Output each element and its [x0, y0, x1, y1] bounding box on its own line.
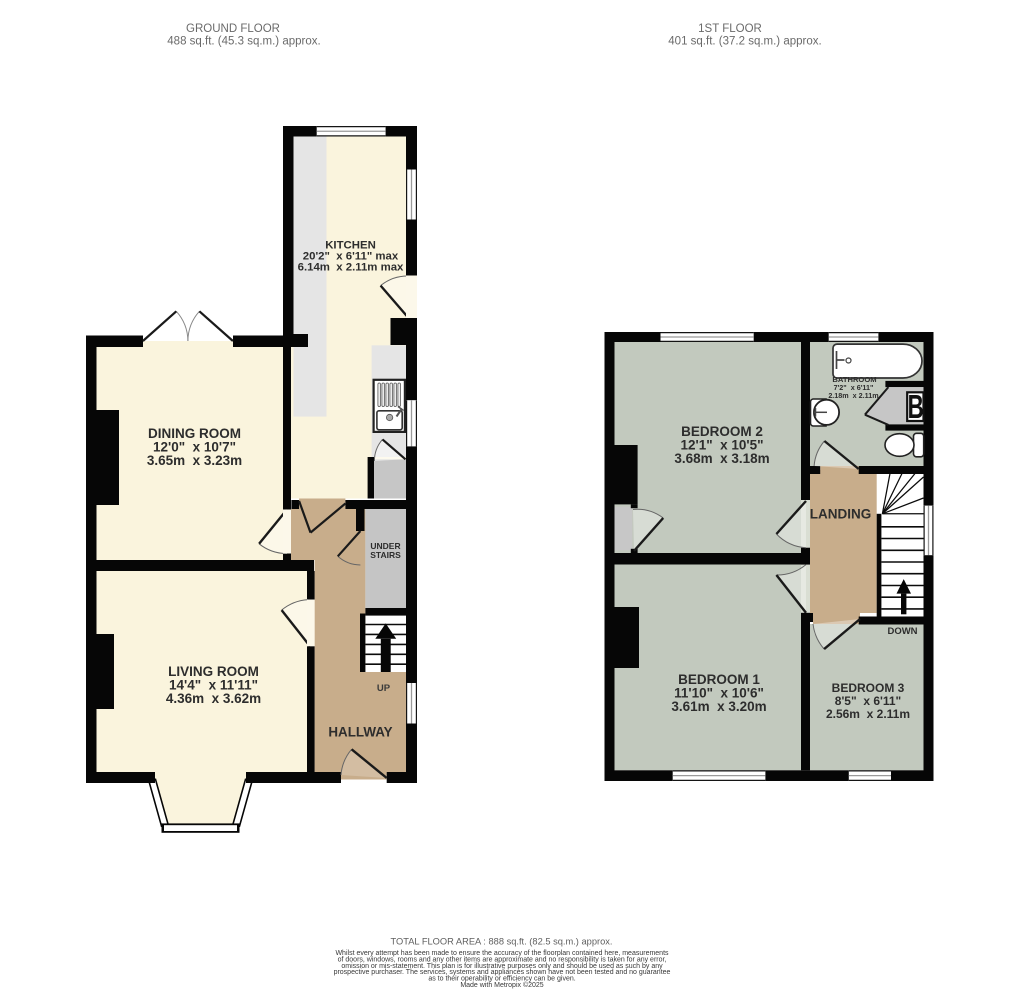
svg-text:TOTAL FLOOR AREA : 888 sq.ft.: TOTAL FLOOR AREA : 888 sq.ft. (82.5 sq.m…: [390, 937, 612, 947]
svg-text:LANDING: LANDING: [810, 507, 872, 522]
svg-text:488 sq.ft. (45.3 sq.m.) approx: 488 sq.ft. (45.3 sq.m.) approx.: [167, 36, 320, 48]
svg-text:B: B: [908, 388, 924, 425]
svg-text:3.65m x 3.23m: 3.65m x 3.23m: [147, 453, 242, 468]
svg-text:1ST FLOOR: 1ST FLOOR: [698, 23, 762, 35]
svg-text:HALLWAY: HALLWAY: [328, 725, 392, 740]
svg-text:GROUND FLOOR: GROUND FLOOR: [186, 23, 280, 35]
svg-text:3.68m x 3.18m: 3.68m x 3.18m: [674, 451, 769, 466]
svg-text:6.14m x 2.11m max: 6.14m x 2.11m max: [298, 262, 404, 274]
svg-text:8'5" x 6'11": 8'5" x 6'11": [835, 694, 901, 708]
svg-text:401 sq.ft. (37.2 sq.m.) approx: 401 sq.ft. (37.2 sq.m.) approx.: [668, 36, 821, 48]
svg-text:Made with Metropix ©2025: Made with Metropix ©2025: [460, 981, 543, 989]
svg-text:2.56m x 2.11m: 2.56m x 2.11m: [826, 707, 910, 721]
svg-text:BEDROOM 3: BEDROOM 3: [832, 681, 905, 695]
svg-text:STAIRS: STAIRS: [370, 550, 401, 560]
svg-text:UP: UP: [377, 683, 391, 694]
svg-text:3.61m x 3.20m: 3.61m x 3.20m: [671, 699, 766, 714]
svg-text:DOWN: DOWN: [887, 626, 917, 637]
svg-text:4.36m x 3.62m: 4.36m x 3.62m: [166, 691, 261, 706]
svg-text:2.18m x 2.11m: 2.18m x 2.11m: [828, 391, 878, 400]
